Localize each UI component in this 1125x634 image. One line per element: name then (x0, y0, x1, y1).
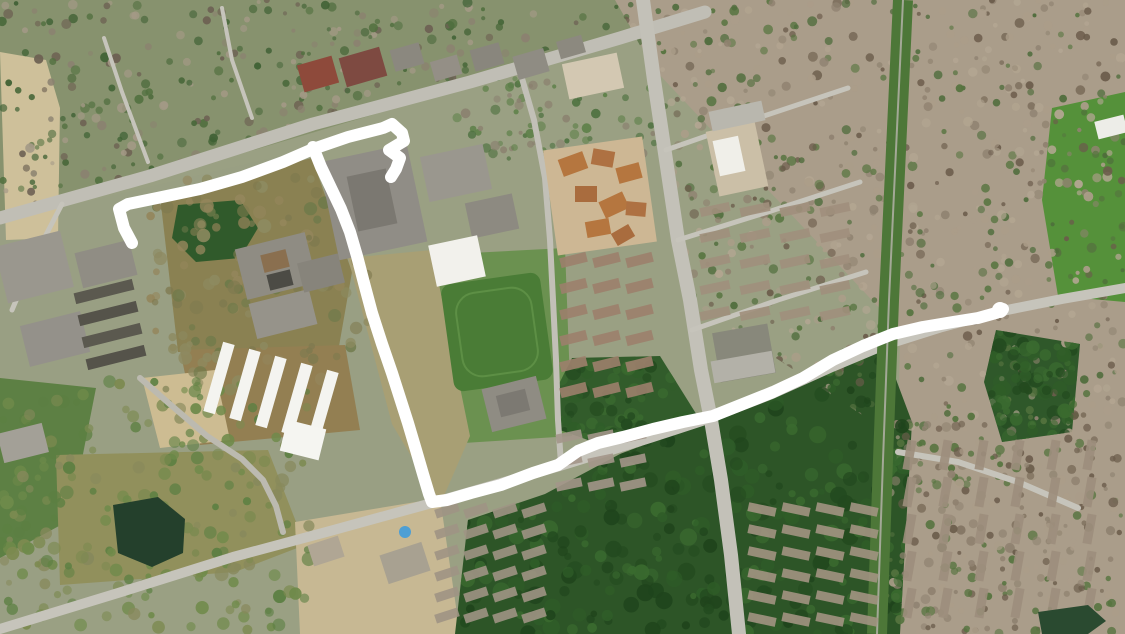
condo-4 (575, 186, 597, 202)
sports-field (440, 272, 554, 393)
condo-6 (625, 201, 646, 217)
map-viewport[interactable] (0, 0, 1125, 634)
swimming-pool (399, 526, 411, 538)
route-end-dot (992, 302, 1008, 318)
satellite-map (0, 0, 1125, 634)
